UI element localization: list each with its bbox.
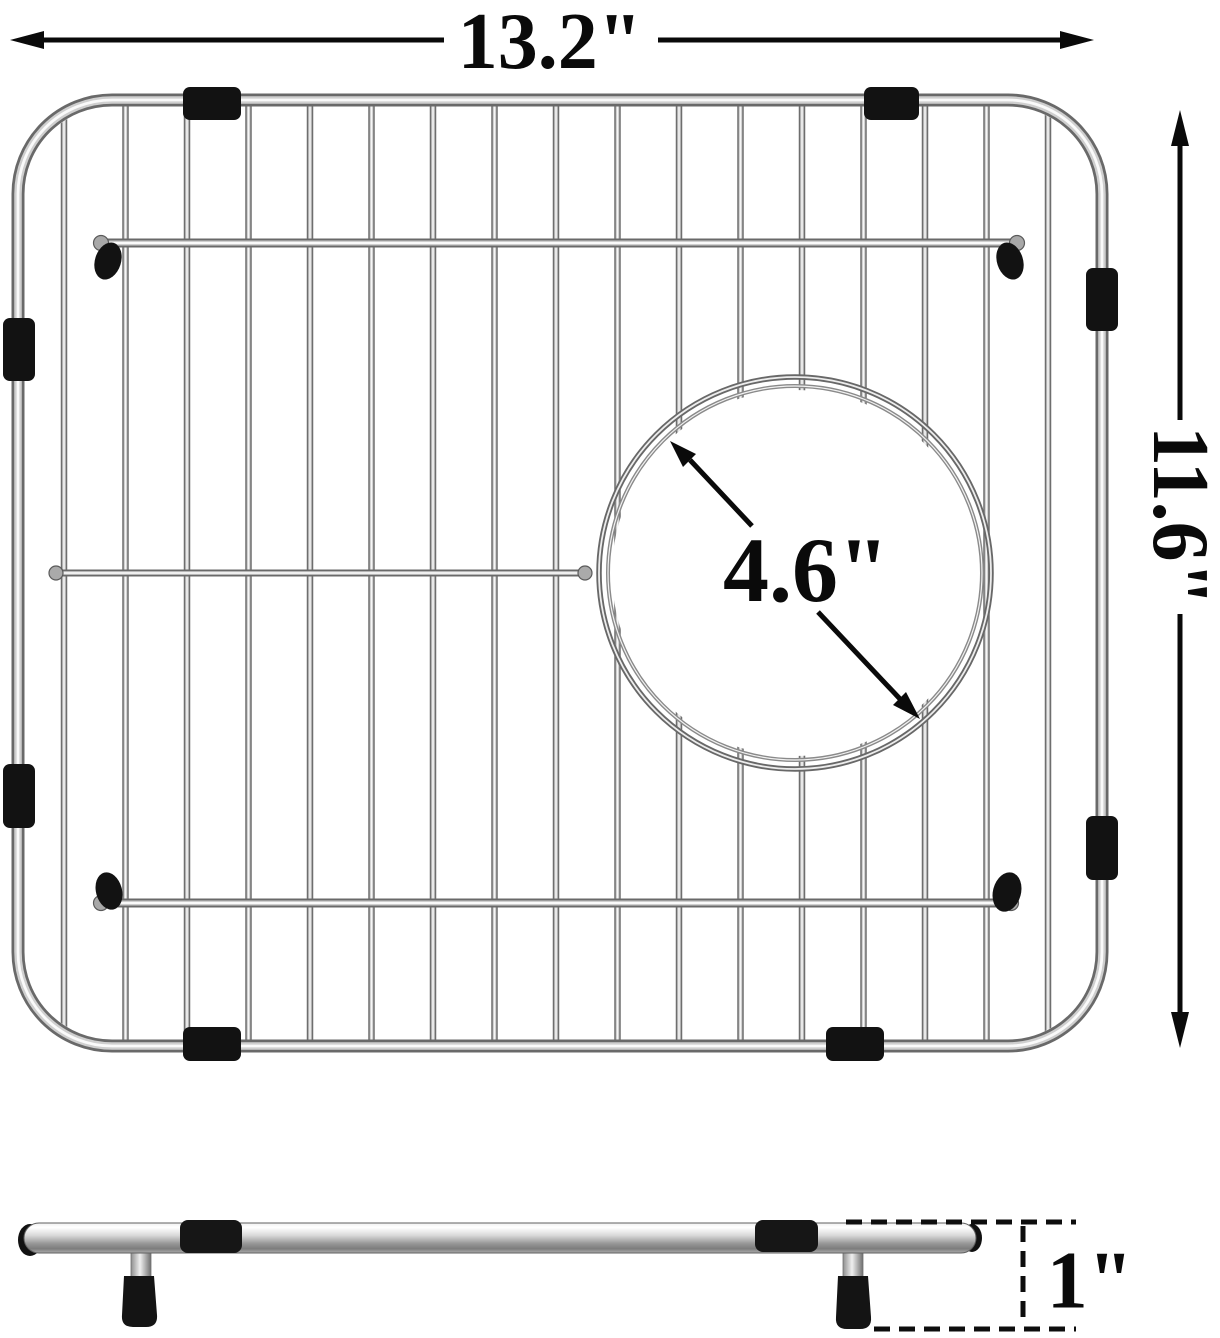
side-foot-right xyxy=(836,1276,871,1329)
diagram-canvas: 13.2" 11.6" 4.6" 1" xyxy=(0,0,1220,1338)
width-dimension-label: 13.2" xyxy=(458,0,642,86)
bumper-left-lower xyxy=(3,764,35,828)
bumper-bottom-left xyxy=(183,1027,241,1061)
arrowhead-down-icon xyxy=(1171,1012,1189,1048)
drain-dimension-label: 4.6" xyxy=(723,519,889,621)
lower-bar-right-foot xyxy=(988,869,1025,915)
arrowhead-left-icon xyxy=(10,31,44,49)
grid-side-view: 1" xyxy=(18,1220,1133,1329)
side-sleeve-right xyxy=(755,1220,818,1252)
height-dimension-label: 11.6" xyxy=(1136,426,1220,606)
bumper-top-right xyxy=(864,87,919,120)
side-foot-left xyxy=(122,1276,157,1327)
middle-cross-wire xyxy=(49,566,592,580)
bumper-left-upper xyxy=(3,318,35,381)
side-view-bar xyxy=(24,1223,976,1253)
arrowhead-up-icon xyxy=(1171,110,1189,146)
profile-height-label: 1" xyxy=(1047,1235,1134,1326)
arrowhead-right-icon xyxy=(1060,31,1094,49)
grid-top-view xyxy=(3,87,1118,1061)
side-sleeve-left xyxy=(180,1220,242,1253)
product-dimension-diagram: 13.2" 11.6" 4.6" 1" xyxy=(0,0,1220,1338)
bumper-bottom-right xyxy=(826,1027,884,1061)
bumper-top-left xyxy=(183,87,241,120)
bumper-right-lower xyxy=(1086,816,1118,880)
bumper-right-upper xyxy=(1086,268,1118,331)
